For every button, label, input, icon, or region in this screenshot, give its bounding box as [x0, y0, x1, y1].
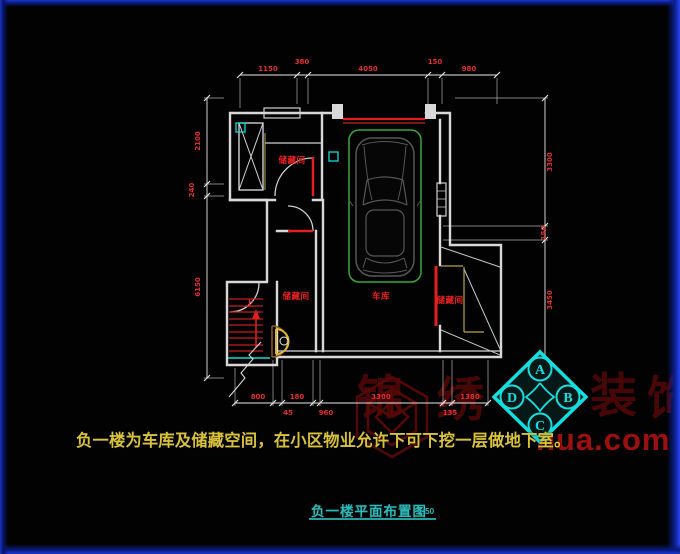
dim-bottom-1: 800 — [251, 393, 266, 401]
sheet-scale: 1:50 — [418, 507, 434, 516]
dimension-text-bottom: 800 180 3300 1380 45 960 135 — [251, 393, 480, 417]
dim-top-5: 980 — [462, 65, 477, 73]
room-label-storage-right: 储藏间 — [435, 295, 463, 306]
annotation-note: 负一楼为车库及储藏空间，在小区物业允许下可下挖一层做地下室。 — [76, 431, 571, 451]
cad-screenshot-canvas: 锦 绣 装 饰 hua.com — [0, 0, 680, 554]
dimension-text-left: 2100 240 6150 — [188, 131, 202, 297]
dim-bottom-sub-3: 135 — [443, 409, 458, 417]
dim-bottom-sub-1: 45 — [283, 409, 293, 417]
dim-top-3: 4050 — [358, 65, 378, 73]
column-marker-2 — [329, 152, 338, 161]
dim-left-1: 2100 — [194, 131, 202, 151]
dim-top-1: 1150 — [258, 65, 278, 73]
badge-letter-b: B — [563, 391, 572, 406]
dim-top-2: 380 — [295, 58, 310, 66]
badge-letter-a: A — [535, 363, 546, 378]
room-label-storage-mid-left: 储藏间 — [281, 291, 309, 302]
stair-up-label: 上 — [245, 298, 254, 309]
room-label-storage-top-left: 储藏间 — [277, 155, 305, 166]
parked-car — [349, 130, 421, 282]
dim-bottom-sub-2: 960 — [319, 409, 334, 417]
badge-letter-d: D — [507, 391, 517, 406]
room-label-garage: 车库 — [372, 291, 390, 302]
sump-pit-fixture — [272, 326, 289, 357]
dimension-text-top: 1150 380 4050 150 980 — [258, 58, 476, 73]
dim-bottom-4: 1380 — [460, 393, 480, 401]
sheet-title: 负一楼平面布置图 — [311, 500, 427, 520]
dim-top-4: 150 — [428, 58, 443, 66]
dim-left-2: 240 — [188, 183, 196, 198]
floor-plan-drawing: 上 储藏间 储藏间 车库 储藏间 — [0, 0, 680, 554]
staircase: 上 — [228, 298, 270, 397]
dim-right-2: 150 — [540, 226, 548, 241]
break-line — [229, 342, 261, 397]
vent-hatch — [437, 183, 446, 216]
dim-right-3: 3450 — [546, 290, 554, 310]
watermark-diamond-badge: A B C D — [494, 352, 586, 442]
dim-left-3: 6150 — [194, 277, 202, 297]
dim-bottom-3: 3300 — [371, 393, 391, 401]
title-underline — [309, 518, 436, 520]
dimension-text-right: 3300 150 3450 — [540, 152, 554, 310]
garage-door-jambs — [332, 104, 436, 119]
window-symbol — [264, 108, 300, 118]
door-arc-storage-mid — [288, 206, 313, 231]
dim-right-1: 3300 — [546, 152, 554, 172]
dim-bottom-2: 180 — [290, 393, 305, 401]
stair-arrow-head — [252, 309, 260, 319]
